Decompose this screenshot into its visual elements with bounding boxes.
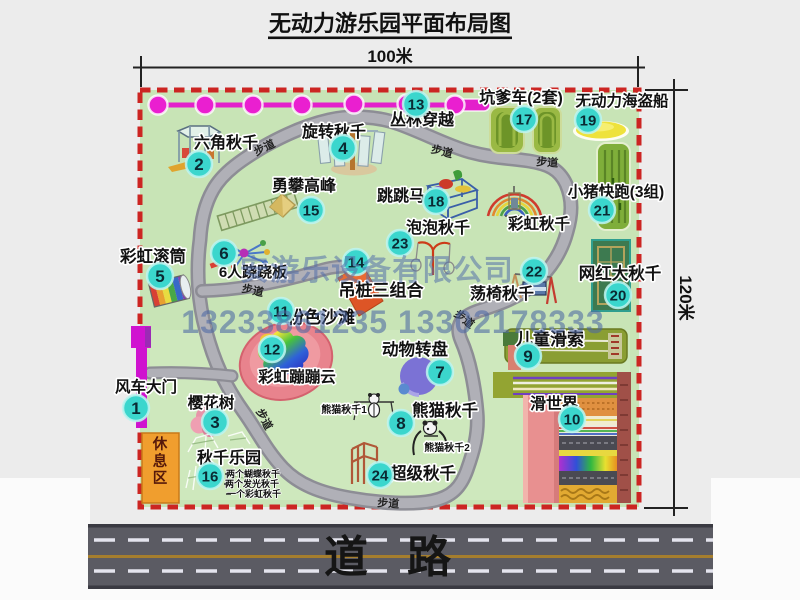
svg-text:6: 6: [219, 244, 228, 263]
svg-text:动物转盘: 动物转盘: [382, 339, 449, 359]
svg-text:勇攀高峰: 勇攀高峰: [272, 176, 337, 195]
svg-text:18: 18: [428, 193, 445, 210]
svg-text:彩虹滚筒: 彩虹滚筒: [119, 246, 186, 266]
svg-text:23: 23: [392, 235, 409, 252]
svg-text:步道: 步道: [536, 154, 559, 170]
svg-text:10: 10: [564, 411, 581, 428]
svg-text:2: 2: [194, 155, 203, 174]
svg-text:3: 3: [210, 413, 219, 432]
svg-text:120米: 120米: [676, 275, 696, 321]
svg-text:熊猫秋千: 熊猫秋千: [412, 400, 478, 420]
svg-text:坑爹车(2套): 坑爹车(2套): [479, 88, 563, 107]
svg-text:路: 路: [407, 533, 452, 582]
svg-text:风车大门: 风车大门: [115, 377, 177, 396]
svg-text:超级秋千: 超级秋千: [390, 463, 456, 483]
svg-text:无动力游乐园平面布局图: 无动力游乐园平面布局图: [269, 11, 511, 36]
svg-text:7: 7: [435, 363, 444, 382]
svg-text:跳跳马: 跳跳马: [377, 186, 425, 205]
svg-text:彩虹蹦蹦云: 彩虹蹦蹦云: [257, 367, 336, 386]
svg-text:区: 区: [153, 470, 168, 487]
svg-text:彩虹秋千: 彩虹秋千: [507, 214, 571, 233]
svg-text:15: 15: [303, 202, 320, 219]
svg-text:9: 9: [523, 347, 532, 366]
svg-text:泡泡秋千: 泡泡秋千: [406, 218, 470, 237]
svg-text:12: 12: [264, 341, 281, 358]
svg-text:21: 21: [594, 202, 611, 219]
svg-text:17: 17: [516, 111, 533, 128]
svg-text:道: 道: [324, 533, 368, 582]
svg-text:小猪快跑(3组): 小猪快跑(3组): [568, 182, 664, 201]
svg-text:8: 8: [396, 414, 405, 433]
svg-text:息: 息: [153, 452, 168, 470]
svg-text:步道: 步道: [377, 495, 400, 511]
svg-text:22: 22: [526, 263, 543, 280]
svg-text:20: 20: [610, 287, 627, 304]
svg-text:19: 19: [580, 112, 597, 129]
svg-text:一个彩虹秋千: 一个彩虹秋千: [227, 488, 281, 499]
svg-text:24: 24: [372, 467, 389, 484]
svg-text:网红大秋千: 网红大秋千: [579, 263, 662, 283]
svg-text:16: 16: [202, 468, 219, 485]
svg-text:13233861235 13302178333: 13233861235 13302178333: [181, 304, 604, 340]
svg-text:100米: 100米: [367, 46, 413, 66]
svg-text:1: 1: [131, 399, 140, 418]
svg-text:两个发光秋千: 两个发光秋千: [225, 478, 279, 489]
svg-text:安游乐设备有限公司: 安游乐设备有限公司: [240, 254, 515, 287]
svg-text:4: 4: [338, 139, 348, 158]
svg-text:13: 13: [408, 96, 425, 113]
svg-text:两个蝴蝶秋千: 两个蝴蝶秋千: [226, 468, 280, 479]
svg-text:熊猫秋千2: 熊猫秋千2: [424, 441, 470, 454]
svg-text:5: 5: [155, 267, 164, 286]
svg-text:六角秋千: 六角秋千: [194, 133, 258, 152]
svg-text:熊猫秋千1: 熊猫秋千1: [321, 403, 367, 416]
svg-text:休: 休: [152, 435, 168, 453]
